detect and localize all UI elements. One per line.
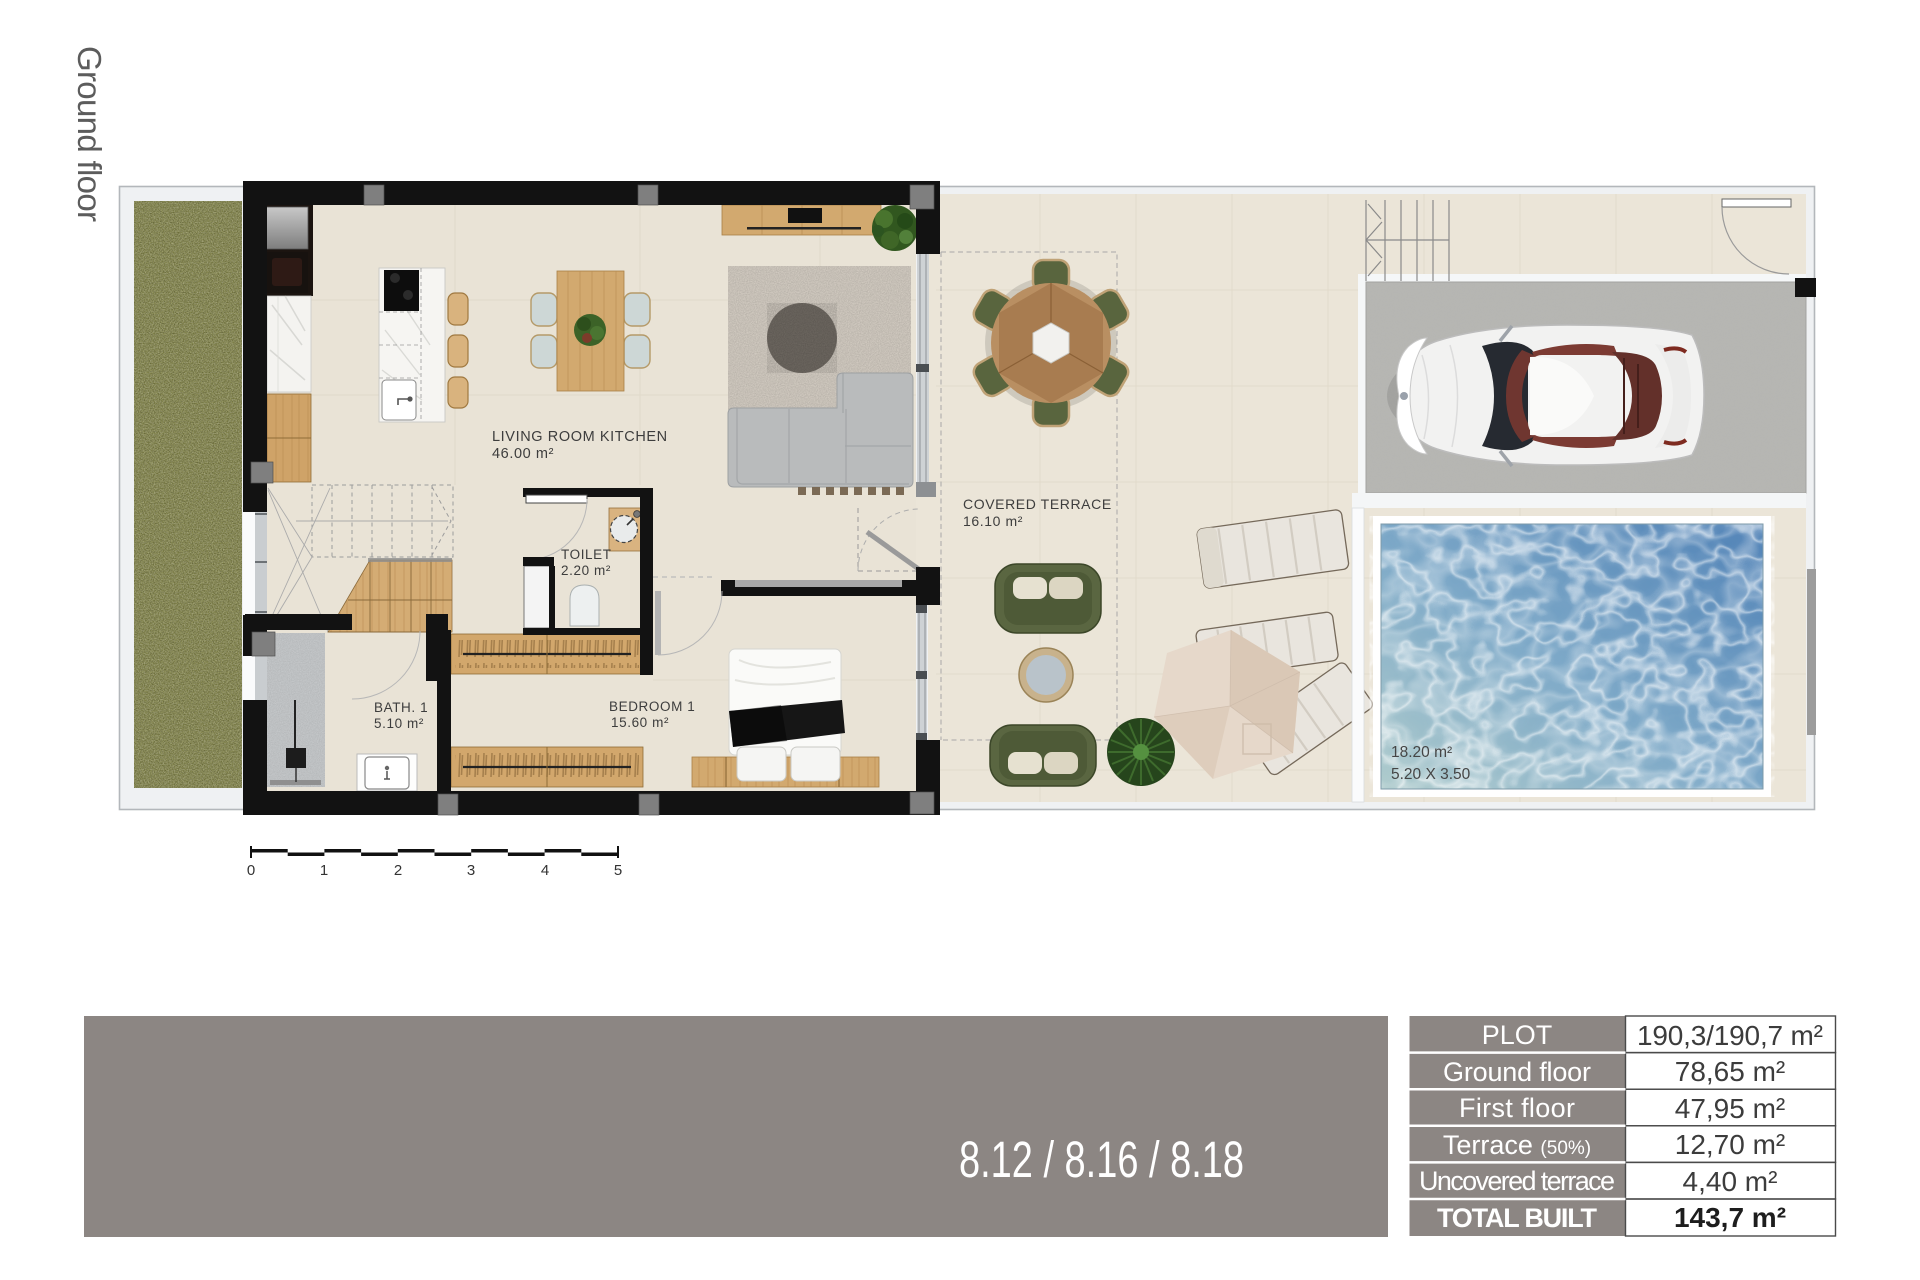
svg-text:4,40 m²: 4,40 m² <box>1683 1166 1778 1197</box>
svg-text:12,70 m²: 12,70 m² <box>1675 1129 1786 1160</box>
svg-text:COVERED TERRACE: COVERED TERRACE <box>963 496 1112 512</box>
svg-text:Ground floor: Ground floor <box>1443 1057 1591 1087</box>
svg-text:5: 5 <box>614 862 622 879</box>
svg-text:47,95 m²: 47,95 m² <box>1675 1093 1786 1124</box>
svg-text:BEDROOM 1: BEDROOM 1 <box>609 699 695 714</box>
svg-text:PLOT: PLOT <box>1482 1020 1553 1050</box>
svg-text:46.00 m²: 46.00 m² <box>492 446 554 462</box>
svg-text:5.10 m²: 5.10 m² <box>374 716 424 731</box>
svg-text:78,65 m²: 78,65 m² <box>1675 1056 1786 1087</box>
svg-text:TOILET: TOILET <box>561 547 612 562</box>
svg-text:BATH. 1: BATH. 1 <box>374 700 428 715</box>
svg-text:5.20 X 3.50: 5.20 X 3.50 <box>1391 766 1471 783</box>
svg-text:0: 0 <box>247 862 255 879</box>
svg-text:15.60 m²: 15.60 m² <box>611 715 669 730</box>
svg-text:TOTAL BUILT: TOTAL BUILT <box>1437 1203 1598 1233</box>
svg-text:4: 4 <box>541 862 549 879</box>
svg-text:18.20 m²: 18.20 m² <box>1391 744 1452 761</box>
svg-text:First floor: First floor <box>1459 1093 1575 1123</box>
svg-text:143,7 m²: 143,7 m² <box>1674 1202 1786 1233</box>
svg-text:Ground floor: Ground floor <box>71 46 108 222</box>
svg-text:8.12 / 8.16 / 8.18: 8.12 / 8.16 / 8.18 <box>959 1131 1244 1188</box>
svg-text:1: 1 <box>320 862 328 879</box>
svg-text:3: 3 <box>467 862 475 879</box>
svg-text:190,3/190,7 m²: 190,3/190,7 m² <box>1637 1020 1823 1051</box>
svg-text:LIVING ROOM KITCHEN: LIVING ROOM KITCHEN <box>492 429 668 445</box>
svg-text:2: 2 <box>394 862 402 879</box>
svg-text:Uncovered terrace: Uncovered terrace <box>1419 1166 1615 1196</box>
svg-text:2.20 m²: 2.20 m² <box>561 563 611 578</box>
svg-text:16.10 m²: 16.10 m² <box>963 513 1023 529</box>
